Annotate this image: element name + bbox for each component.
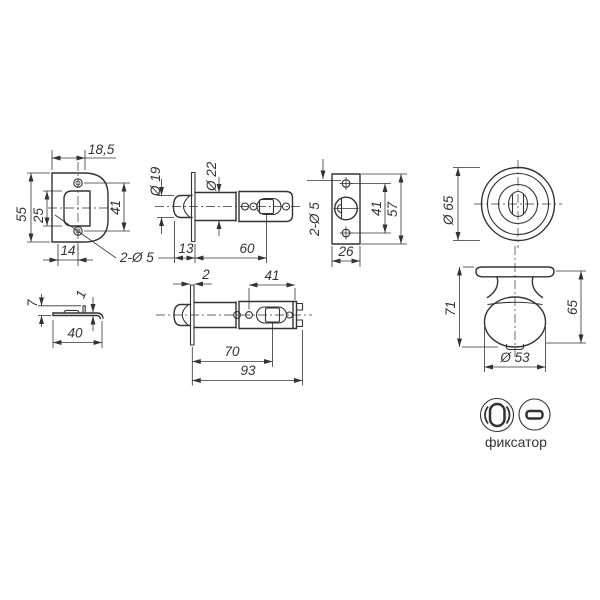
technical-drawing-canvas: 55 25 41 18,5 bbox=[0, 0, 600, 600]
dim-label-D19: Ø 19 bbox=[148, 166, 163, 197]
dim-label-18-5: 18,5 bbox=[88, 142, 115, 157]
dim-D19: Ø 19 bbox=[148, 166, 174, 234]
dim-label-41-faceplate: 41 bbox=[108, 200, 123, 215]
turn-button-icon bbox=[481, 399, 514, 432]
dim-2: 2 bbox=[173, 267, 212, 284]
dim-label-26: 26 bbox=[337, 244, 354, 259]
view-latch-backset60: Ø 19 Ø 22 13 60 bbox=[148, 161, 302, 263]
dim-26: 26 bbox=[332, 244, 360, 267]
dim-label-D22: Ø 22 bbox=[204, 161, 219, 192]
dim-label-2xD5-faceplate: 2-Ø 5 bbox=[119, 250, 154, 265]
emergency-slot-icon bbox=[519, 399, 550, 430]
fixator-caption: фиксатор bbox=[485, 434, 547, 450]
dim-70: 70 bbox=[192, 323, 272, 386]
dim-label-14: 14 bbox=[60, 243, 75, 258]
view-rose-front: Ø 65 bbox=[441, 160, 562, 248]
dim-label-60: 60 bbox=[239, 241, 255, 256]
dim-label-1: 1 bbox=[72, 288, 89, 301]
dim-label-41-strike: 41 bbox=[369, 201, 384, 216]
dim-55: 55 bbox=[14, 173, 50, 242]
dim-41-latch70: 41 bbox=[249, 268, 295, 310]
strike-hole-top bbox=[340, 177, 353, 190]
view-knob-side: 71 65 Ø 53 bbox=[443, 246, 586, 372]
dim-label-70: 70 bbox=[224, 344, 240, 359]
dim-label-D53: Ø 53 bbox=[499, 350, 530, 365]
dim-65: 65 bbox=[546, 271, 586, 343]
dim-D22: Ø 22 bbox=[204, 161, 219, 236]
strike-hole-bottom bbox=[340, 227, 353, 240]
dim-label-2: 2 bbox=[201, 267, 210, 282]
callout-2xD5-strike: 2-Ø 5 bbox=[307, 159, 341, 237]
dim-25: 25 bbox=[31, 191, 62, 226]
dim-label-57: 57 bbox=[385, 201, 400, 217]
dim-label-71: 71 bbox=[443, 301, 458, 316]
dim-label-7: 7 bbox=[25, 299, 40, 307]
latch-window bbox=[64, 191, 90, 226]
latch-faceplate-edge bbox=[192, 173, 196, 242]
dim-label-13: 13 bbox=[178, 241, 194, 256]
view-latch-backset70: 2 41 70 93 bbox=[156, 267, 312, 386]
strike-bolt-view bbox=[334, 197, 359, 220]
dim-label-65: 65 bbox=[565, 299, 580, 315]
dim-label-25: 25 bbox=[31, 207, 46, 224]
dim-label-41-latch70: 41 bbox=[264, 268, 279, 283]
dim-label-40: 40 bbox=[67, 326, 83, 341]
strike-plate-profile bbox=[53, 313, 103, 319]
dim-14: 14 bbox=[43, 243, 93, 266]
view-strike-box: 2-Ø 5 41 57 26 bbox=[307, 159, 407, 267]
dim-57: 57 bbox=[361, 174, 407, 244]
dim-40: 40 bbox=[53, 320, 102, 348]
plate-tab bbox=[83, 306, 85, 313]
fixator-icons: фиксатор bbox=[481, 399, 551, 451]
dim-label-D65: Ø 65 bbox=[441, 195, 456, 226]
dim-18-5: 18,5 bbox=[52, 142, 116, 170]
drawing-sheet: 55 25 41 18,5 bbox=[0, 0, 600, 600]
view-strike-plate-side: 7 1 40 bbox=[25, 288, 103, 348]
dim-label-93: 93 bbox=[240, 363, 256, 378]
dim-label-55: 55 bbox=[14, 206, 29, 222]
view-faceplate-front: 55 25 41 18,5 bbox=[14, 142, 154, 266]
dim-label-2xD5-strike: 2-Ø 5 bbox=[307, 202, 322, 237]
dim-93: 93 bbox=[192, 330, 302, 386]
